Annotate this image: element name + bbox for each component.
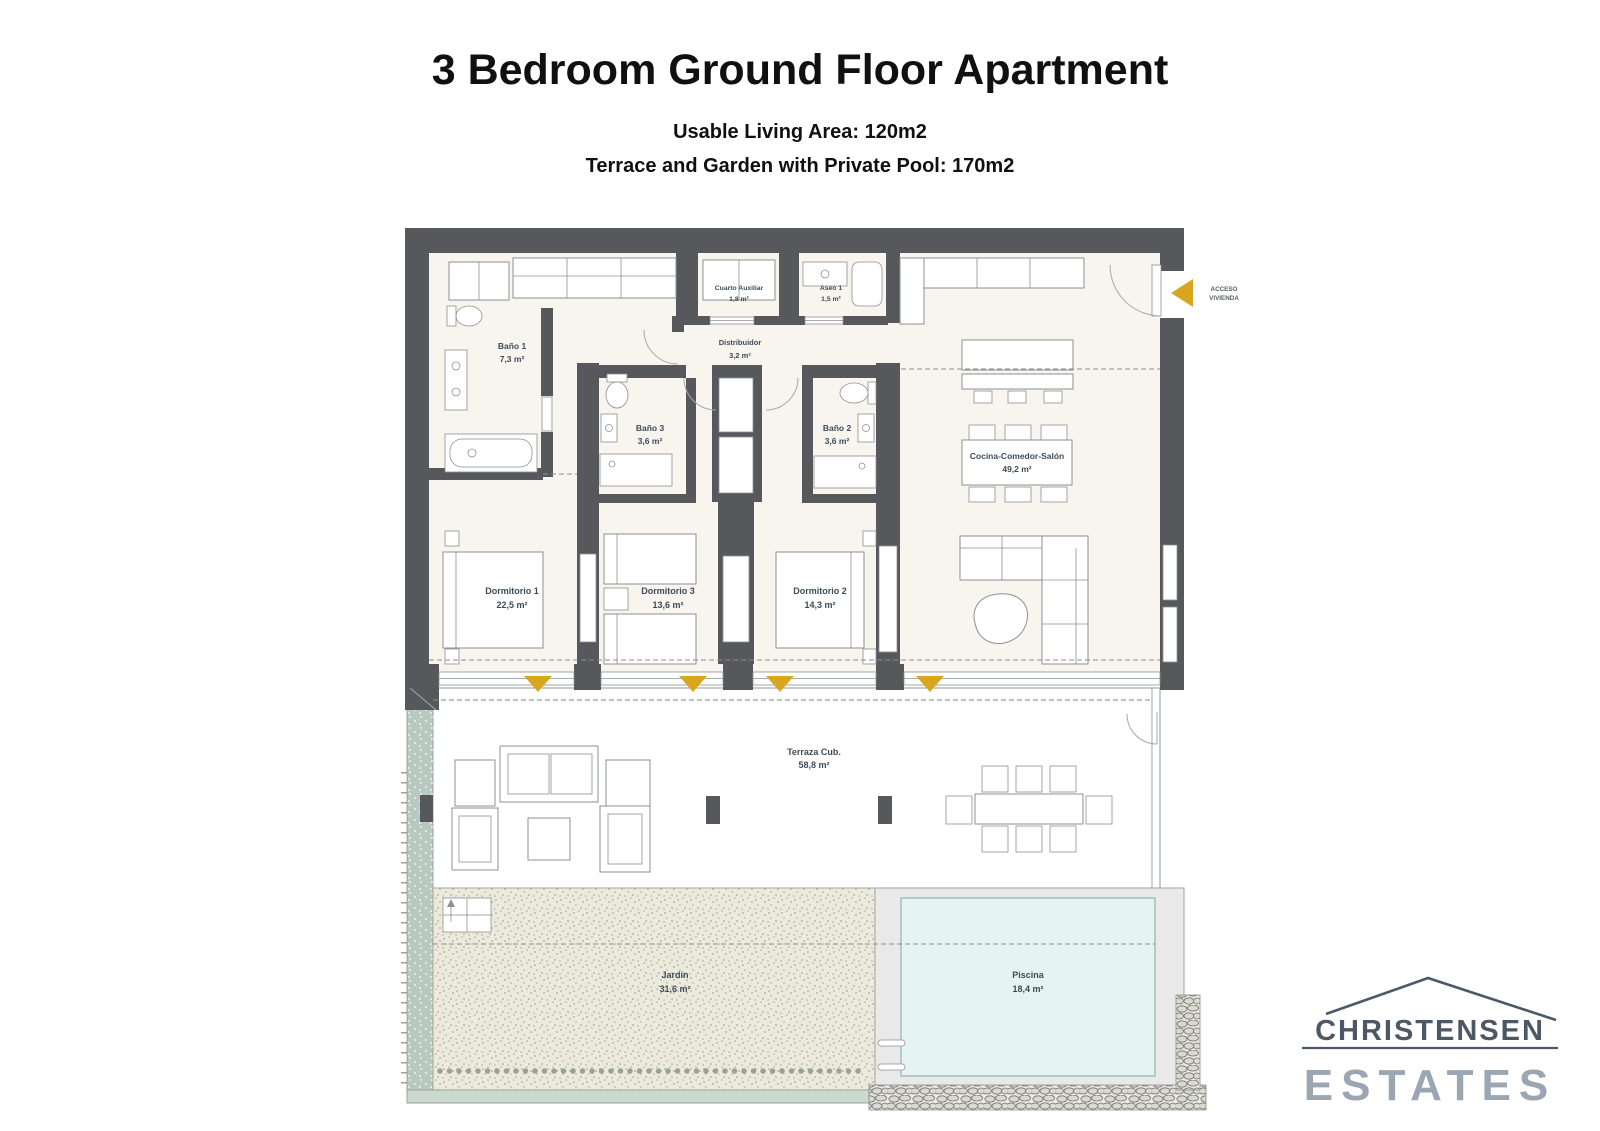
room-label: Cocina-Comedor-Salón [970, 451, 1064, 461]
room-area: 7,3 m² [500, 354, 525, 364]
bathroom1-wall-upper [541, 308, 553, 396]
vanity-icon [445, 350, 467, 410]
room-label: Jardín [661, 970, 688, 980]
room-label: Dormitorio 1 [485, 586, 539, 596]
wall-top [405, 228, 1184, 253]
pillar-bottom-right [1160, 664, 1184, 690]
toilet-icon [840, 383, 868, 403]
agency-logo: CHRISTENSEN ESTATES [1280, 960, 1580, 1110]
room-label: Terraza Cub. [787, 747, 841, 757]
room-area: 14,3 m² [804, 600, 835, 610]
shaft-unit [719, 378, 753, 432]
subtitle-terrace-garden: Terrace and Garden with Private Pool: 17… [0, 155, 1600, 178]
floor-plan-drawing: Baño 1 7,3 m² Cuarto Auxiliar 1,8 m² Ase… [395, 225, 1255, 1115]
room-label: Distribuidor [719, 338, 762, 347]
room-area: 18,4 m² [1012, 984, 1043, 994]
logo-type: ESTATES [1304, 1061, 1556, 1110]
logo-roof-icon [1326, 978, 1556, 1020]
toilet-icon [606, 382, 628, 408]
room-area: 3,6 m² [638, 436, 663, 446]
side-window-1 [1163, 545, 1177, 600]
shaft-unit [719, 437, 753, 493]
garden-gate-icon [443, 898, 491, 932]
hedge-strip [404, 690, 433, 1090]
room-label: Cuarto Auxiliar [715, 285, 764, 292]
terrace-door-arc [1127, 714, 1157, 744]
room-label: Baño 1 [498, 341, 527, 351]
room-label: Baño 2 [823, 423, 852, 433]
room-area: 31,6 m² [659, 984, 690, 994]
room-area: 1,8 m² [729, 296, 749, 303]
column [706, 796, 720, 824]
column [878, 796, 892, 824]
access-line1: ACCESO [1211, 286, 1238, 293]
garden-edge-band [407, 1090, 869, 1103]
aseo-sliding-door [805, 317, 843, 324]
shower-icon [600, 454, 672, 486]
access-label: ACCESO VIVIENDA [1209, 286, 1239, 302]
sink-icon [858, 414, 874, 442]
storage-unit-icon [703, 260, 775, 300]
terrace-window-1 [439, 672, 574, 685]
hedge-wall-stub [420, 795, 433, 822]
outdoor-dining-icons [946, 766, 1112, 852]
closet-icon [580, 554, 596, 642]
access-line2: VIVIENDA [1209, 295, 1239, 302]
room-area: 22,5 m² [496, 600, 527, 610]
aseo-sink-icon [803, 262, 847, 286]
subtitle-living-area: Usable Living Area: 120m2 [0, 121, 1600, 144]
wardrobe-icons [449, 258, 676, 300]
sink-icon [601, 414, 617, 442]
room-area: 3,2 m² [729, 351, 751, 360]
room-area: 13,6 m² [652, 600, 683, 610]
bathroom1-pocket-door [542, 397, 552, 431]
closet-icon [723, 556, 749, 642]
room-label: Baño 3 [636, 423, 665, 433]
aseo-shower-icon [852, 262, 882, 306]
room-label: Dormitorio 3 [641, 586, 695, 596]
wall-left [405, 228, 429, 668]
outdoor-lounge-icons [452, 746, 650, 872]
room-area: 58,8 m² [798, 760, 829, 770]
logo-name: CHRISTENSEN [1315, 1015, 1545, 1047]
room-label: Aseo 1 [820, 285, 843, 292]
room-area: 3,6 m² [825, 436, 850, 446]
wall-right-upper [1160, 253, 1184, 271]
storage-sliding-door [710, 317, 754, 324]
room-area: 49,2 m² [1002, 464, 1031, 474]
room-label: Dormitorio 2 [793, 586, 847, 596]
terrace-window-4 [904, 672, 1160, 685]
header: 3 Bedroom Ground Floor Apartment Usable … [0, 0, 1600, 178]
room-area: 1,5 m² [821, 296, 841, 303]
shower-icon [814, 456, 876, 488]
page-title: 3 Bedroom Ground Floor Apartment [0, 48, 1600, 93]
entrance-marker [1171, 279, 1193, 307]
room-label: Piscina [1012, 970, 1045, 980]
pillar-bottom-left [405, 664, 439, 710]
garden [407, 888, 875, 1103]
closet-icon [879, 546, 897, 652]
toilet-icon [456, 306, 482, 326]
side-window-2 [1163, 607, 1177, 662]
floor-plan-page: 3 Bedroom Ground Floor Apartment Usable … [0, 0, 1600, 1131]
